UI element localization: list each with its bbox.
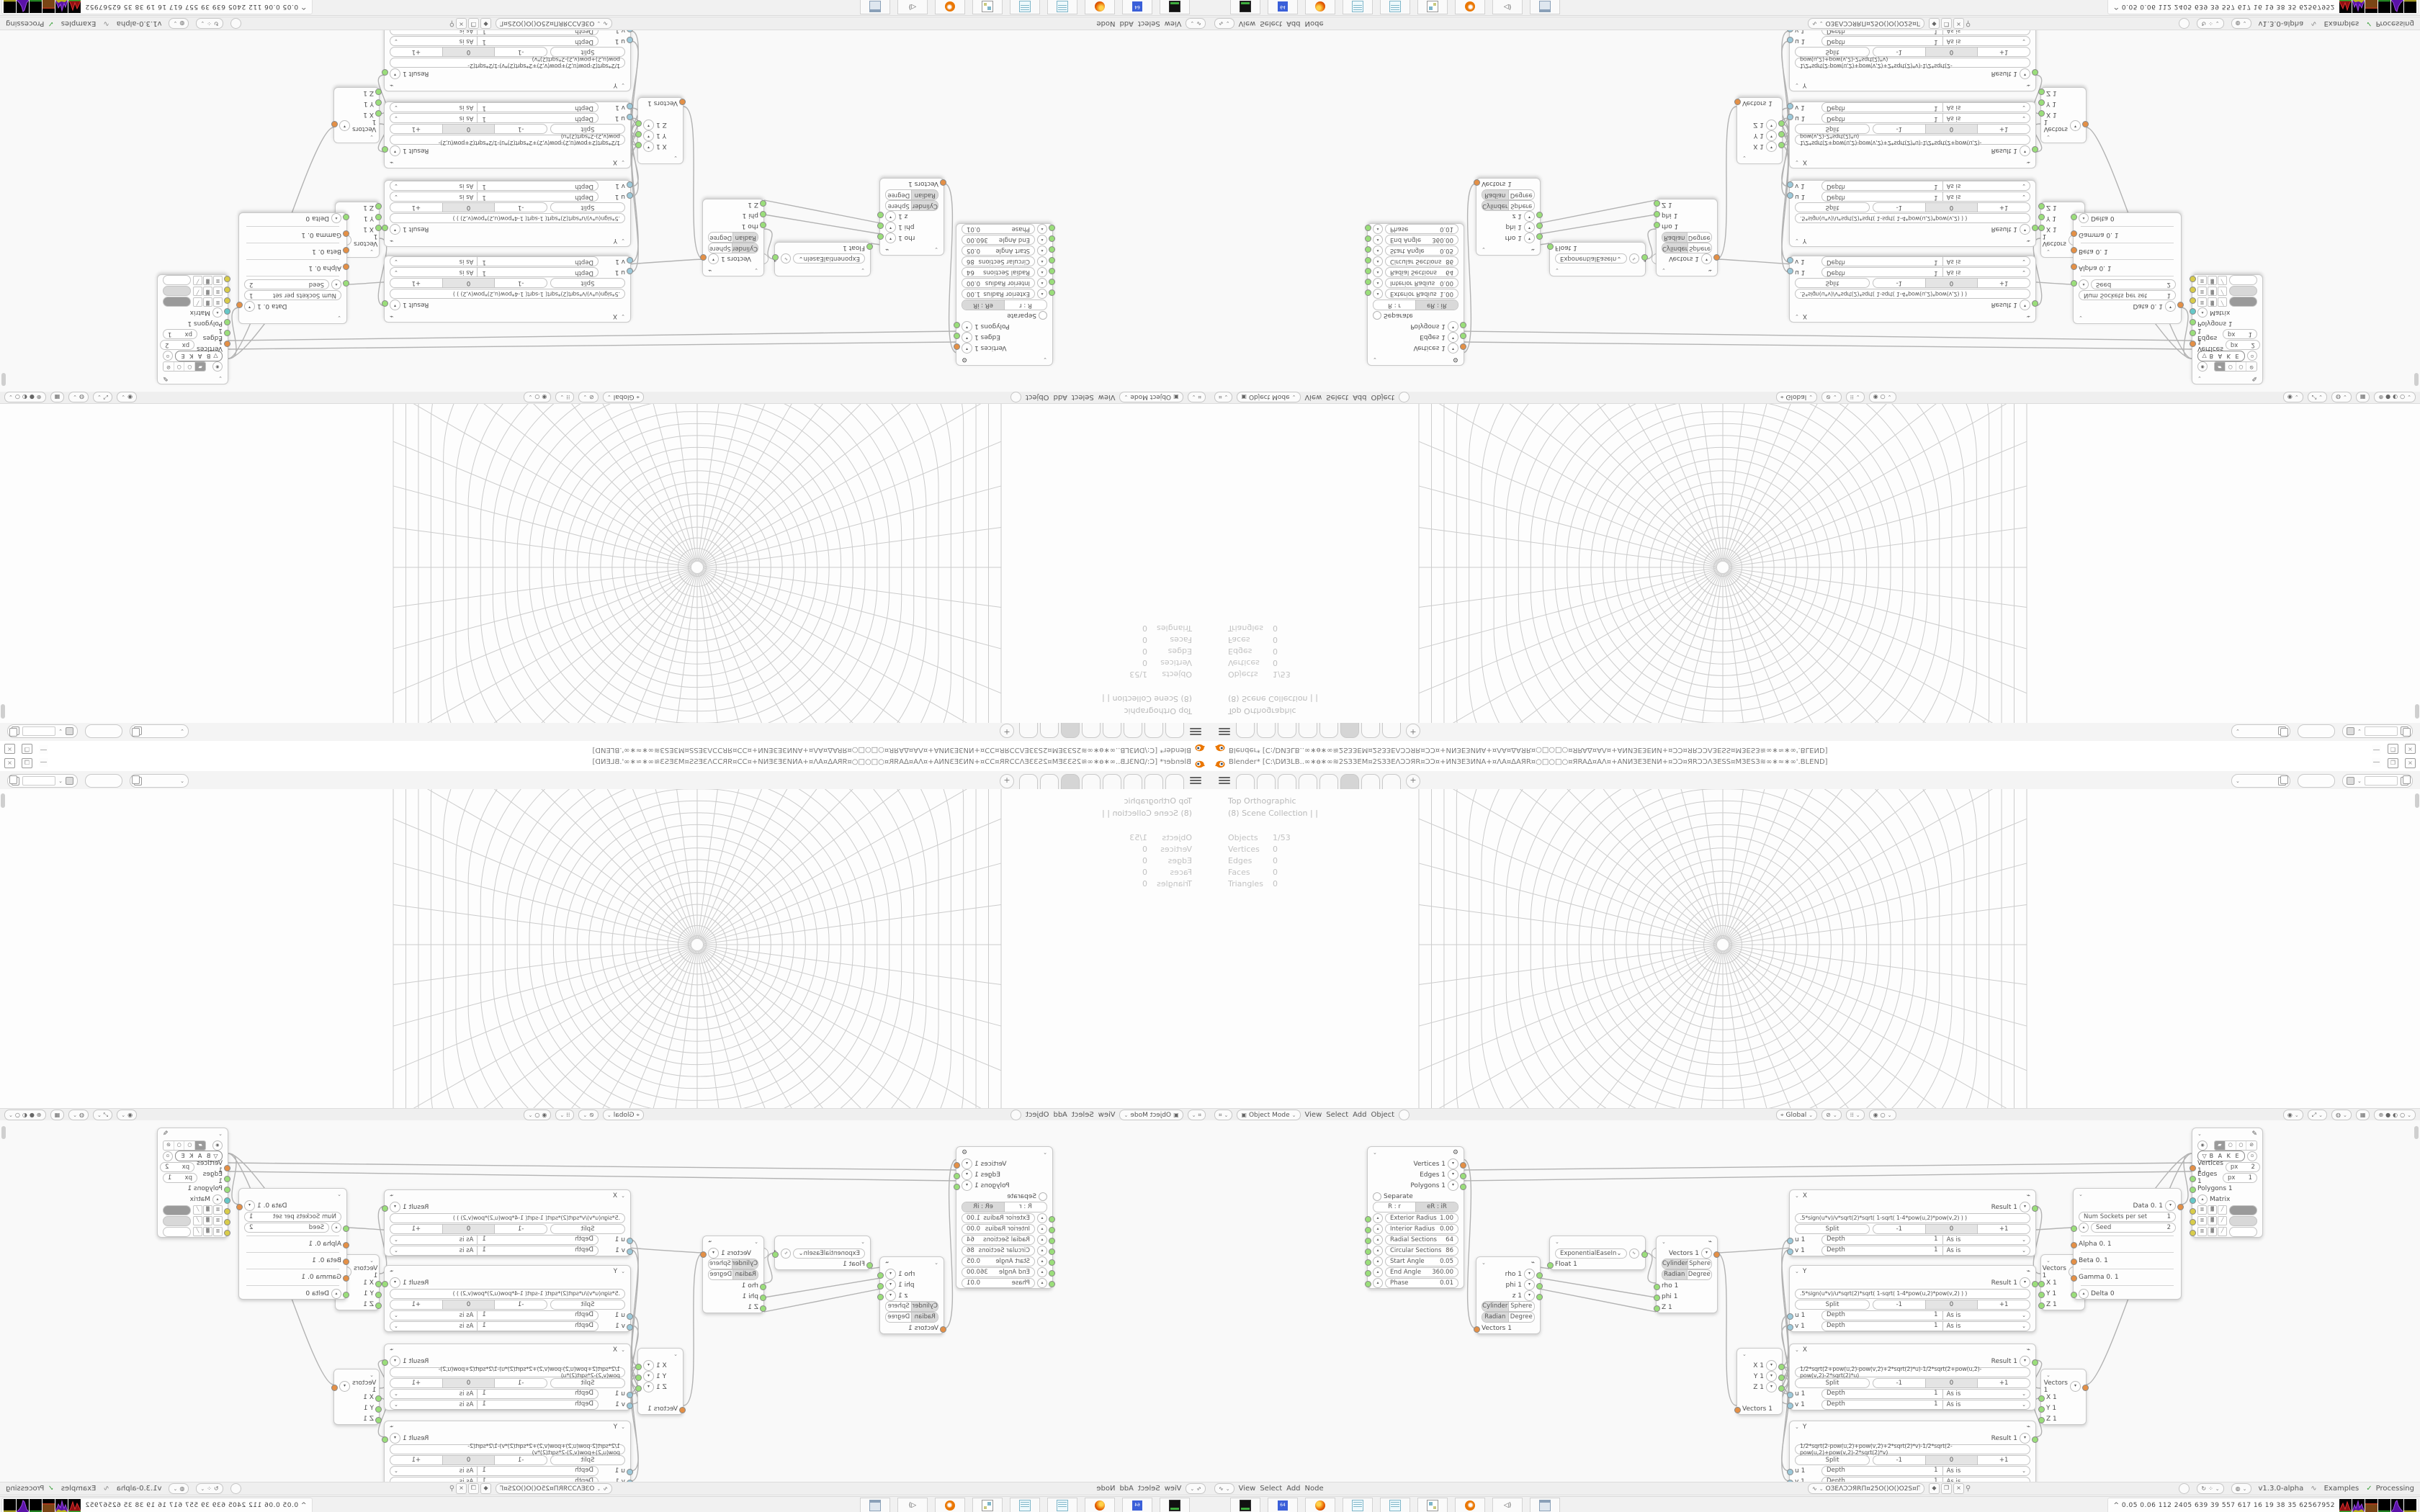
fake-user-shield-icon[interactable]: ◆ — [480, 18, 491, 29]
workspace-tab-1[interactable] — [1236, 723, 1255, 738]
node-viewer-draw[interactable]: ⌄✎◉▰○○⊘▽B A K E⊙Vertices 1px2Edges 1px1P… — [2192, 274, 2263, 384]
workspace-tab-2[interactable] — [1257, 774, 1276, 789]
node-vector-out[interactable]: ⌄X 1▾Y 1▾Z 1▾Vectors 1 — [1736, 1348, 1783, 1415]
editor-type-button[interactable]: ⌗⌄ — [1214, 392, 1232, 402]
taskbar-app-window[interactable] — [860, 1498, 890, 1512]
close-button[interactable]: × — [2405, 744, 2416, 754]
node-menu-select[interactable]: Select — [1260, 1485, 1282, 1493]
scene-extra[interactable] — [85, 724, 122, 738]
copy-scene-icon[interactable] — [2278, 777, 2286, 786]
xray-toggle[interactable]: ◍⌄ — [2331, 392, 2352, 402]
bake-all-button[interactable]: ◍⌄ — [2231, 1483, 2251, 1494]
node-vec-polar-in[interactable]: ⌄⌁Vectors 1▾CylinderSphereRadianDegreerh… — [1656, 199, 1718, 276]
node-viewer-draw[interactable]: ⌄✎◉▰○○⊘▽B A K E⊙Vertices 1px2Edges 1px1P… — [2192, 1128, 2263, 1238]
node-vec-polar-in[interactable]: ⌄⌁Vectors 1▾CylinderSphereRadianDegreerh… — [702, 199, 764, 276]
workspace-tab-3[interactable] — [1124, 774, 1142, 789]
taskbar-app-volume[interactable]: ◁) — [1492, 1498, 1523, 1512]
taskbar-app-floppy64[interactable]: 64 — [1268, 0, 1298, 14]
node-viewer-draw[interactable]: ⌄✎◉▰○○⊘▽B A K E⊙Vertices 1px2Edges 1px1P… — [157, 1128, 228, 1238]
viewport-scrollbar[interactable] — [2415, 793, 2419, 808]
shading-cluster[interactable]: ⊕●◐○⌄ — [4, 392, 46, 402]
workspace-tab-8[interactable] — [1382, 774, 1401, 789]
reupdate-button[interactable]: ↻⁘⌄ — [2197, 1483, 2223, 1494]
node-menu-node[interactable]: Node — [1096, 19, 1115, 27]
taskbar-app-notepad[interactable] — [1010, 0, 1040, 14]
workspace-tab-7[interactable] — [1040, 774, 1059, 789]
node-formula-x1[interactable]: ⌄X⌁Result 1▾.5*sign(u*v)/v*sqrt(2)*sqrt(… — [1789, 1189, 2036, 1256]
node-menu-add[interactable]: Add — [1286, 1485, 1300, 1493]
search-circle-icon[interactable] — [1399, 1110, 1410, 1120]
minimize-button[interactable]: — — [39, 758, 48, 767]
show-gizmo-toggle[interactable]: ◉⌄ — [2283, 1110, 2303, 1120]
menu-view[interactable]: View — [1305, 393, 1322, 401]
update-circle-icon[interactable] — [230, 18, 241, 29]
fake-user-shield-icon[interactable]: ◆ — [480, 1483, 491, 1494]
minimize-button[interactable]: — — [2372, 758, 2381, 767]
workspace-tab-6[interactable] — [1340, 774, 1359, 789]
scene-selector[interactable]: ⌄ — [130, 724, 189, 738]
show-gizmo-toggle[interactable]: ◉⌄ — [117, 1110, 137, 1120]
unlink-tree-icon[interactable]: × — [1953, 18, 1964, 29]
overlays-toggle[interactable]: ⤢⌄ — [2308, 1110, 2327, 1120]
workspace-tab-7[interactable] — [1040, 723, 1059, 738]
add-workspace-button[interactable]: + — [1000, 774, 1014, 788]
workspace-tab-7[interactable] — [1361, 723, 1380, 738]
workspace-tab-4[interactable] — [1103, 723, 1121, 738]
node-editor[interactable]: ⌄⚙Vertices 1▾Edges 1▾Polygons 1▾Separate… — [1210, 1120, 2420, 1482]
node-formula-y2[interactable]: ⌄Y⌁Result 1▾1/2*sqrt(2-pow(u,2)+pow(v,2)… — [1789, 30, 2036, 91]
node-vector-out[interactable]: ⌄X 1▾Y 1▾Z 1▾Vectors 1 — [637, 97, 684, 164]
workspace-tab-4[interactable] — [1299, 774, 1317, 789]
node-vec-polar-out[interactable]: ⌄⌁rho 1▾phi 1▾z 1▾CylinderSphereRadianDe… — [879, 178, 944, 256]
examples-menu[interactable]: Examples — [2324, 19, 2359, 27]
workspace-tab-4[interactable] — [1299, 723, 1317, 738]
workspace-tab-3[interactable] — [1278, 723, 1296, 738]
taskbar-app-photos[interactable] — [972, 0, 1003, 14]
copy-scene-icon[interactable] — [134, 777, 142, 786]
show-gizmo-toggle[interactable]: ◉⌄ — [117, 392, 137, 402]
node-tree-selector[interactable]: ∿⌄ ОЗЕΛƆƆЯRП¤25О()О()О2S¤ПЯRƆΛЗЕО — [1808, 18, 1924, 29]
shading-cluster[interactable]: ⊕●◐○⌄ — [2374, 392, 2416, 402]
node-tree-selector[interactable]: ∿⌄ ОЗЕΛƆƆЯRП¤25О()О()О2S¤ПЯRƆΛЗЕО — [1808, 1483, 1924, 1494]
node-easing[interactable]: ⌄ExponentialEaseIn⌄∿1▾Float 1 — [1549, 242, 1646, 276]
menu-object[interactable]: Object — [1371, 393, 1395, 401]
menu-select[interactable]: Select — [1326, 1111, 1348, 1119]
examples-menu[interactable]: Examples — [2324, 1485, 2359, 1493]
maximize-button[interactable]: ❐ — [2388, 758, 2398, 768]
search-circle-icon[interactable] — [1010, 392, 1021, 402]
snap-toggle[interactable]: ⊘⌄ — [1821, 1110, 1842, 1120]
node-viewer-draw[interactable]: ⌄✎◉▰○○⊘▽B A K E⊙Vertices 1px2Edges 1px1P… — [157, 274, 228, 384]
menu-add[interactable]: Add — [1054, 393, 1067, 401]
menu-hamburger-icon[interactable] — [1190, 775, 1201, 784]
node-vector-in-b[interactable]: ⌄Vectors 1▾X 1Y 1Z 1 — [333, 1369, 380, 1425]
orientation-selector[interactable]: ⌖Global⌄ — [1776, 392, 1817, 402]
close-button[interactable]: × — [2405, 758, 2416, 768]
node-vec-polar-out[interactable]: ⌄⌁rho 1▾phi 1▾z 1▾CylinderSphereRadianDe… — [1476, 178, 1541, 256]
workspace-tab-8[interactable] — [1019, 774, 1038, 789]
update-circle-icon[interactable] — [2179, 1483, 2190, 1494]
bake-all-button[interactable]: ◍⌄ — [169, 1483, 189, 1494]
node-formula-y1[interactable]: ⌄Y⌁Result 1▾.5*sign(u*v)/u*sqrt(2)*sqrt(… — [1789, 1265, 2036, 1332]
copy-tree-icon[interactable]: ❐ — [468, 18, 479, 29]
scene-selector[interactable]: ⌄ — [130, 774, 189, 788]
update-circle-icon[interactable] — [230, 1483, 241, 1494]
taskbar-app-blender[interactable] — [1455, 1498, 1485, 1512]
node-menu-node[interactable]: Node — [1096, 1485, 1115, 1493]
node-easing[interactable]: ⌄ExponentialEaseIn⌄∿1▾Float 1 — [774, 1236, 871, 1270]
node-easing[interactable]: ⌄ExponentialEaseIn⌄∿1▾Float 1 — [1549, 1236, 1646, 1270]
reupdate-button[interactable]: ↻⁘⌄ — [2197, 18, 2223, 29]
taskbar-app-volume[interactable]: ◁) — [1492, 0, 1523, 14]
snap-target-selector[interactable]: ⁞⁞⌄ — [1846, 392, 1865, 402]
node-editor-type-button[interactable]: ∿⌄ — [1186, 18, 1206, 29]
taskbar-app-floppy64[interactable]: 64 — [1268, 1498, 1298, 1512]
node-formula-y2[interactable]: ⌄Y⌁Result 1▾1/2*sqrt(2-pow(u,2)+pow(v,2)… — [1789, 1421, 2036, 1482]
new-viewlayer-icon[interactable] — [12, 777, 19, 786]
mode-selector[interactable]: ▣Object Mode⌄ — [1119, 392, 1183, 402]
close-button[interactable]: × — [4, 758, 15, 768]
menu-hamburger-icon[interactable] — [1190, 728, 1201, 737]
proportional-edit-toggle[interactable]: ◉○⌄ — [524, 392, 552, 402]
new-viewlayer-icon[interactable] — [2401, 727, 2408, 736]
taskbar-app-notepad[interactable] — [1343, 1498, 1373, 1512]
search-circle-icon[interactable] — [1399, 392, 1410, 402]
bake-all-button[interactable]: ◍⌄ — [2231, 18, 2251, 29]
add-workspace-button[interactable]: + — [1406, 774, 1420, 788]
taskbar-app-blender[interactable] — [1455, 0, 1485, 14]
show-gizmo-toggle[interactable]: ◉⌄ — [2283, 392, 2303, 402]
workspace-tab-2[interactable] — [1144, 723, 1163, 738]
viewport-3d[interactable]: Top Orthographic (8) Scene Collection | … — [0, 789, 1210, 1108]
maximize-button[interactable]: ❐ — [22, 758, 32, 768]
menu-object[interactable]: Object — [1026, 393, 1049, 401]
node-menu-select[interactable]: Select — [1260, 19, 1282, 27]
mode-label: Object Mode — [1249, 1112, 1290, 1119]
proportional-edit-toggle[interactable]: ◉○⌄ — [1869, 1110, 1896, 1120]
taskbar-app-volume[interactable]: ◁) — [897, 1498, 928, 1512]
taskbar-app-blender[interactable] — [935, 1498, 965, 1512]
taskbar-app-firefox[interactable] — [1085, 0, 1115, 14]
snap-toggle[interactable]: ⊘⌄ — [1821, 392, 1842, 402]
node-formula-x1[interactable]: ⌄X⌁Result 1▾.5*sign(u*v)/v*sqrt(2)*sqrt(… — [1789, 256, 2036, 323]
unlink-tree-icon[interactable]: × — [456, 1483, 467, 1494]
node-vector-in-b[interactable]: ⌄Vectors 1▾X 1Y 1Z 1 — [333, 87, 380, 143]
node-formula-y2[interactable]: ⌄Y⌁Result 1▾1/2*sqrt(2-pow(u,2)+pow(v,2)… — [384, 1421, 631, 1482]
taskbar-app-photos[interactable] — [1417, 1498, 1448, 1512]
viewport-scrollbar[interactable] — [2415, 704, 2419, 719]
menu-view[interactable]: View — [1305, 1111, 1322, 1119]
shading-wireframe-button[interactable]: ▦ — [2356, 392, 2370, 402]
node-vector-out[interactable]: ⌄X 1▾Y 1▾Z 1▾Vectors 1 — [637, 1348, 684, 1415]
node-editor-type-button[interactable]: ∿⌄ — [1214, 18, 1234, 29]
add-workspace-button[interactable]: + — [1000, 724, 1014, 738]
mode-selector[interactable]: ▣Object Mode⌄ — [1237, 392, 1300, 402]
snap-target-selector[interactable]: ⁞⁞⌄ — [555, 392, 574, 402]
node-menu-add[interactable]: Add — [1286, 19, 1300, 27]
workspace-tab-6[interactable] — [1061, 723, 1080, 738]
processing-toggle[interactable]: Processing — [2376, 1485, 2414, 1493]
viewlayer-selector[interactable]: ⌄ — [2342, 724, 2413, 738]
node-data-node[interactable]: ⌄Data 0. 1▾Num Sockets per set1▴Seed2Alp… — [2073, 1188, 2182, 1300]
orientation-selector[interactable]: ⌖Global⌄ — [603, 1110, 644, 1120]
fake-user-shield-icon[interactable]: ◆ — [1929, 1483, 1940, 1494]
node-data-node[interactable]: ⌄Data 0. 1▾Num Sockets per set1▴Seed2Alp… — [2073, 212, 2182, 324]
taskbar-app-window[interactable] — [860, 0, 890, 14]
pin-icon[interactable]: ⚲ — [449, 19, 454, 27]
taskbar-app-volume[interactable]: ◁) — [897, 0, 928, 14]
menu-view[interactable]: View — [1098, 393, 1116, 401]
node-torus[interactable]: ⌄⚙Vertices 1▾Edges 1▾Polygons 1▾Separate… — [956, 223, 1053, 366]
node-data-node[interactable]: ⌄Data 0. 1▾Num Sockets per set1▴Seed2Alp… — [238, 212, 347, 324]
reupdate-button[interactable]: ↻⁘⌄ — [196, 1483, 223, 1494]
taskbar-app-drive[interactable] — [1160, 0, 1190, 14]
shading-cluster[interactable]: ⊕●◐○⌄ — [4, 1110, 46, 1120]
node-vector-out[interactable]: ⌄X 1▾Y 1▾Z 1▾Vectors 1 — [1736, 97, 1783, 164]
workspace-tab-8[interactable] — [1382, 723, 1401, 738]
node-formula-x1[interactable]: ⌄X⌁Result 1▾.5*sign(u*v)/v*sqrt(2)*sqrt(… — [384, 1189, 631, 1256]
new-viewlayer-icon[interactable] — [12, 727, 19, 736]
examples-menu[interactable]: Examples — [61, 19, 97, 27]
node-menu-node[interactable]: Node — [1305, 1485, 1324, 1493]
viewport-scrollbar[interactable] — [1, 704, 5, 719]
copy-tree-icon[interactable]: ❐ — [1941, 18, 1952, 29]
workspace-tab-1[interactable] — [1165, 774, 1184, 789]
taskbar-app-firefox[interactable] — [1085, 1498, 1115, 1512]
node-editor-scrollbar[interactable] — [1, 1126, 6, 1139]
fake-user-shield-icon[interactable]: ◆ — [1929, 18, 1940, 29]
node-editor-scrollbar[interactable] — [1, 373, 6, 386]
taskbar-app-blender[interactable] — [935, 0, 965, 14]
menu-select[interactable]: Select — [1326, 393, 1348, 401]
node-formula-y1[interactable]: ⌄Y⌁Result 1▾.5*sign(u*v)/u*sqrt(2)*sqrt(… — [384, 180, 631, 247]
taskbar-app-firefox[interactable] — [1305, 0, 1335, 14]
pin-icon[interactable]: ⚲ — [449, 1485, 454, 1493]
xray-toggle[interactable]: ◍⌄ — [68, 392, 89, 402]
viewlayer-selector[interactable]: ⌄ — [7, 774, 78, 788]
unlink-tree-icon[interactable]: × — [1953, 1483, 1964, 1494]
node-formula-y1[interactable]: ⌄Y⌁Result 1▾.5*sign(u*v)/u*sqrt(2)*sqrt(… — [384, 1265, 631, 1332]
node-formula-x2[interactable]: ⌄X⌁Result 1▾1/2*sqrt(2+pow(u,2)-pow(v,2)… — [384, 102, 631, 168]
viewport-3d[interactable]: Top Orthographic (8) Scene Collection | … — [0, 404, 1210, 723]
scene-extra[interactable] — [85, 774, 122, 788]
editor-type-button[interactable]: ⌗⌄ — [1188, 1110, 1206, 1120]
taskbar-app-notepad[interactable] — [1047, 0, 1077, 14]
node-data-node[interactable]: ⌄Data 0. 1▾Num Sockets per set1▴Seed2Alp… — [238, 1188, 347, 1300]
taskbar-app-floppy64[interactable]: 64 — [1122, 0, 1152, 14]
node-vec-polar-in[interactable]: ⌄⌁Vectors 1▾CylinderSphereRadianDegreerh… — [702, 1236, 764, 1313]
node-formula-x2[interactable]: ⌄X⌁Result 1▾1/2*sqrt(2+pow(u,2)-pow(v,2)… — [1789, 1344, 2036, 1410]
xray-toggle[interactable]: ◍⌄ — [68, 1110, 89, 1120]
viewlayer-selector[interactable]: ⌄ — [7, 724, 78, 738]
taskbar-app-notepad[interactable] — [1380, 1498, 1410, 1512]
taskbar-app-drive[interactable] — [1230, 0, 1260, 14]
close-button[interactable]: × — [4, 744, 15, 754]
orientation-selector[interactable]: ⌖Global⌄ — [603, 392, 644, 402]
overlays-toggle[interactable]: ⤢⌄ — [2308, 392, 2327, 402]
taskbar-app-firefox[interactable] — [1305, 1498, 1335, 1512]
node-menu-select[interactable]: Select — [1138, 1485, 1160, 1493]
taskbar-app-floppy64[interactable]: 64 — [1122, 1498, 1152, 1512]
node-menu-select[interactable]: Select — [1138, 19, 1160, 27]
workspace-tab-5[interactable] — [1082, 774, 1101, 789]
editor-type-button[interactable]: ⌗⌄ — [1188, 392, 1206, 402]
processing-toggle[interactable]: Processing — [6, 1485, 44, 1493]
update-circle-icon[interactable] — [2179, 18, 2190, 29]
node-formula-x1[interactable]: ⌄X⌁Result 1▾.5*sign(u*v)/v*sqrt(2)*sqrt(… — [384, 256, 631, 323]
menu-hamburger-icon[interactable] — [1219, 775, 1230, 784]
node-editor[interactable]: ⌄⚙Vertices 1▾Edges 1▾Polygons 1▾Separate… — [0, 1120, 1210, 1482]
node-vec-polar-out[interactable]: ⌄⌁rho 1▾phi 1▾z 1▾CylinderSphereRadianDe… — [1476, 1256, 1541, 1334]
scene-extra[interactable] — [2298, 774, 2335, 788]
copy-tree-icon[interactable]: ❐ — [1941, 1483, 1952, 1494]
workspace-tab-6[interactable] — [1340, 723, 1359, 738]
node-vector-in-b[interactable]: ⌄Vectors 1▾X 1Y 1Z 1 — [2040, 87, 2087, 143]
scene-extra[interactable] — [2298, 724, 2335, 738]
node-menu-view[interactable]: View — [1239, 19, 1256, 27]
viewport-scrollbar[interactable] — [1, 793, 5, 808]
node-torus[interactable]: ⌄⚙Vertices 1▾Edges 1▾Polygons 1▾Separate… — [956, 1146, 1053, 1289]
node-formula-y2[interactable]: ⌄Y⌁Result 1▾1/2*sqrt(2-pow(u,2)+pow(v,2)… — [384, 30, 631, 91]
shading-wireframe-button[interactable]: ▦ — [50, 1110, 65, 1120]
workspace-tab-8[interactable] — [1019, 723, 1038, 738]
add-workspace-button[interactable]: + — [1406, 724, 1420, 738]
node-formula-y1[interactable]: ⌄Y⌁Result 1▾.5*sign(u*v)/u*sqrt(2)*sqrt(… — [1789, 180, 2036, 247]
taskbar-app-drive[interactable] — [1230, 1498, 1260, 1512]
workspace-tab-6[interactable] — [1061, 774, 1080, 789]
proportional-edit-toggle[interactable]: ◉○⌄ — [524, 1110, 552, 1120]
node-menu-add[interactable]: Add — [1119, 19, 1133, 27]
node-editor-scrollbar[interactable] — [2414, 1126, 2419, 1139]
snap-toggle[interactable]: ⊘⌄ — [578, 392, 599, 402]
overlays-toggle[interactable]: ⤢⌄ — [93, 392, 112, 402]
mode-selector[interactable]: ▣Object Mode⌄ — [1237, 1110, 1300, 1120]
snap-target-selector[interactable]: ⁞⁞⌄ — [555, 1110, 574, 1120]
examples-menu[interactable]: Examples — [61, 1485, 97, 1493]
node-editor-type-button[interactable]: ∿⌄ — [1214, 1483, 1234, 1494]
maximize-button[interactable]: ❐ — [22, 744, 32, 754]
node-torus[interactable]: ⌄⚙Vertices 1▾Edges 1▾Polygons 1▾Separate… — [1367, 1146, 1464, 1289]
bake-all-button[interactable]: ◍⌄ — [169, 18, 189, 29]
node-tree-selector[interactable]: ∿⌄ ОЗЕΛƆƆЯRП¤25О()О()О2S¤ПЯRƆΛЗЕО — [496, 18, 612, 29]
node-editor[interactable]: ⌄⚙Vertices 1▾Edges 1▾Polygons 1▾Separate… — [1210, 30, 2420, 392]
workspace-tab-5[interactable] — [1082, 723, 1101, 738]
node-menu-view[interactable]: View — [1165, 19, 1182, 27]
workspace-tab-5[interactable] — [1319, 723, 1338, 738]
workspace-tab-2[interactable] — [1144, 774, 1163, 789]
stat-row: Vertices0 — [1129, 657, 1192, 668]
taskbar-app-window[interactable] — [1530, 1498, 1560, 1512]
copy-scene-icon[interactable] — [134, 727, 142, 736]
workspace-tab-1[interactable] — [1165, 723, 1184, 738]
taskbar-app-notepad[interactable] — [1047, 1498, 1077, 1512]
unlink-tree-icon[interactable]: × — [456, 18, 467, 29]
node-tree-selector[interactable]: ∿⌄ ОЗЕΛƆƆЯRП¤25О()О()О2S¤ПЯRƆΛЗЕО — [496, 1483, 612, 1494]
node-vec-polar-out[interactable]: ⌄⌁rho 1▾phi 1▾z 1▾CylinderSphereRadianDe… — [879, 1256, 944, 1334]
pin-icon[interactable]: ⚲ — [1966, 19, 1971, 27]
node-editor-scrollbar[interactable] — [2414, 373, 2419, 386]
snap-target-selector[interactable]: ⁞⁞⌄ — [1846, 1110, 1865, 1120]
node-easing[interactable]: ⌄ExponentialEaseIn⌄∿1▾Float 1 — [774, 242, 871, 276]
viewport-3d[interactable]: Top Orthographic (8) Scene Collection | … — [1210, 404, 2420, 723]
mode-selector[interactable]: ▣Object Mode⌄ — [1119, 1110, 1183, 1120]
scene-selector[interactable]: ⌄ — [2231, 774, 2290, 788]
node-menu-node[interactable]: Node — [1305, 19, 1324, 27]
scene-selector[interactable]: ⌄ — [2231, 724, 2290, 738]
node-editor-type-button[interactable]: ∿⌄ — [1186, 1483, 1206, 1494]
copy-scene-icon[interactable] — [2278, 727, 2286, 736]
shading-wireframe-button[interactable]: ▦ — [2356, 1110, 2370, 1120]
menu-select[interactable]: Select — [1072, 1111, 1094, 1119]
workspace-tab-4[interactable] — [1103, 774, 1121, 789]
processing-toggle[interactable]: Processing — [2376, 19, 2414, 27]
node-formula-x2[interactable]: ⌄X⌁Result 1▾1/2*sqrt(2+pow(u,2)-pow(v,2)… — [384, 1344, 631, 1410]
taskbar-app-photos[interactable] — [972, 1498, 1003, 1512]
overlays-toggle[interactable]: ⤢⌄ — [93, 1110, 112, 1120]
node-menu-view[interactable]: View — [1239, 1485, 1256, 1493]
node-formula-x2[interactable]: ⌄X⌁Result 1▾1/2*sqrt(2+pow(u,2)-pow(v,2)… — [1789, 102, 2036, 168]
menu-hamburger-icon[interactable] — [1219, 728, 1230, 737]
shading-wireframe-button[interactable]: ▦ — [50, 392, 65, 402]
taskbar-app-notepad[interactable] — [1010, 1498, 1040, 1512]
node-editor[interactable]: ⌄⚙Vertices 1▾Edges 1▾Polygons 1▾Separate… — [0, 30, 1210, 392]
node-menu-add[interactable]: Add — [1119, 1485, 1133, 1493]
taskbar-app-photos[interactable] — [1417, 0, 1448, 14]
workspace-tab-5[interactable] — [1319, 774, 1338, 789]
menu-add[interactable]: Add — [1353, 1111, 1366, 1119]
workspace-tab-2[interactable] — [1257, 723, 1276, 738]
workspace-tab-3[interactable] — [1124, 723, 1142, 738]
viewlayer-selector[interactable]: ⌄ — [2342, 774, 2413, 788]
menu-object[interactable]: Object — [1026, 1111, 1049, 1119]
shading-cluster[interactable]: ⊕●◐○⌄ — [2374, 1110, 2416, 1120]
xray-toggle[interactable]: ◍⌄ — [2331, 1110, 2352, 1120]
search-circle-icon[interactable] — [1010, 1110, 1021, 1120]
node-torus[interactable]: ⌄⚙Vertices 1▾Edges 1▾Polygons 1▾Separate… — [1367, 223, 1464, 366]
menu-object[interactable]: Object — [1371, 1111, 1395, 1119]
taskbar-app-window[interactable] — [1530, 0, 1560, 14]
workspace-tab-3[interactable] — [1278, 774, 1296, 789]
viewport-3d[interactable]: Top Orthographic (8) Scene Collection | … — [1210, 789, 2420, 1108]
snap-toggle[interactable]: ⊘⌄ — [578, 1110, 599, 1120]
workspace-tab-1[interactable] — [1236, 774, 1255, 789]
taskbar-app-notepad[interactable] — [1380, 0, 1410, 14]
menu-select[interactable]: Select — [1072, 393, 1094, 401]
minimize-button[interactable]: — — [39, 745, 48, 754]
check-icon: ✓ — [2366, 19, 2372, 27]
taskbar-app-notepad[interactable] — [1343, 0, 1373, 14]
menu-add[interactable]: Add — [1353, 393, 1366, 401]
taskbar-app-drive[interactable] — [1160, 1498, 1190, 1512]
node-vector-in-b[interactable]: ⌄Vectors 1▾X 1Y 1Z 1 — [2040, 1369, 2087, 1425]
workspace-tab-7[interactable] — [1361, 774, 1380, 789]
orientation-selector[interactable]: ⌖Global⌄ — [1776, 1110, 1817, 1120]
processing-toggle[interactable]: Processing — [6, 19, 44, 27]
copy-tree-icon[interactable]: ❐ — [468, 1483, 479, 1494]
menu-view[interactable]: View — [1098, 1111, 1116, 1119]
addon-version: v1.3.0-alpha — [117, 19, 162, 27]
proportional-edit-toggle[interactable]: ◉○⌄ — [1869, 392, 1896, 402]
editor-type-button[interactable]: ⌗⌄ — [1214, 1110, 1232, 1120]
minimize-button[interactable]: — — [2372, 745, 2381, 754]
node-menu-view[interactable]: View — [1165, 1485, 1182, 1493]
maximize-button[interactable]: ❐ — [2388, 744, 2398, 754]
menu-add[interactable]: Add — [1054, 1111, 1067, 1119]
reupdate-button[interactable]: ↻⁘⌄ — [196, 18, 223, 29]
pin-icon[interactable]: ⚲ — [1966, 1485, 1971, 1493]
new-viewlayer-icon[interactable] — [2401, 777, 2408, 786]
node-vec-polar-in[interactable]: ⌄⌁Vectors 1▾CylinderSphereRadianDegreerh… — [1656, 1236, 1718, 1313]
